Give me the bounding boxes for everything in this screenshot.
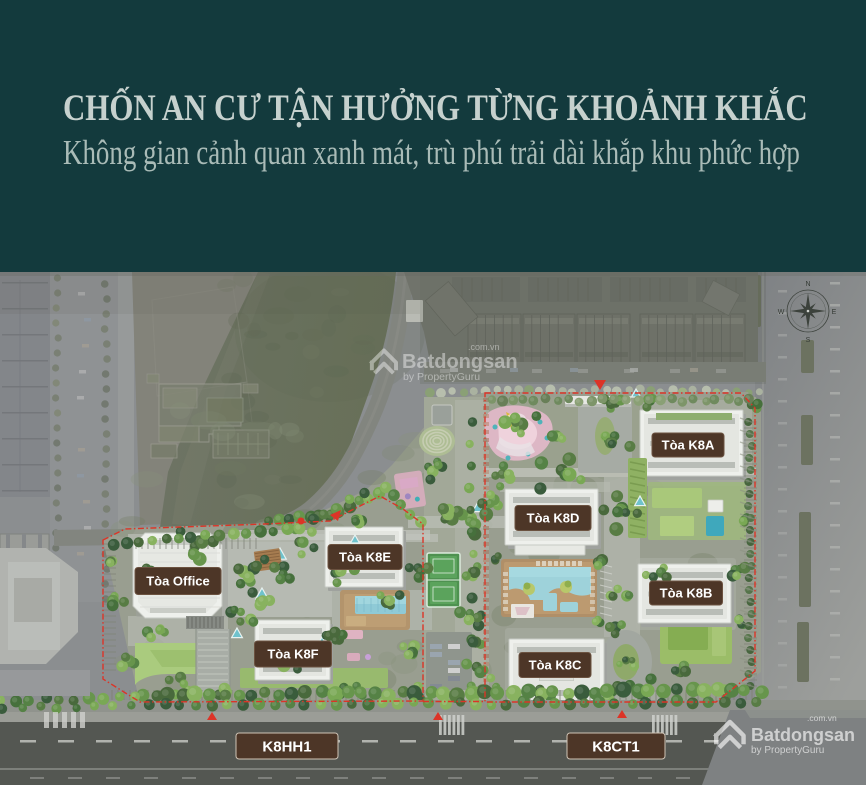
svg-text:by PropertyGuru: by PropertyGuru (751, 745, 824, 756)
svg-text:Tòa K8D: Tòa K8D (527, 511, 580, 526)
svg-text:Tòa K8E: Tòa K8E (339, 550, 391, 565)
svg-text:Tòa Office: Tòa Office (146, 574, 210, 589)
svg-text:by PropertyGuru: by PropertyGuru (403, 371, 480, 383)
svg-text:Batdongsan: Batdongsan (751, 725, 855, 745)
svg-text:E: E (832, 309, 837, 316)
svg-text:Tòa K8A: Tòa K8A (662, 438, 715, 453)
svg-text:S: S (806, 337, 811, 344)
svg-text:Tòa K8C: Tòa K8C (529, 658, 582, 673)
svg-text:W: W (778, 309, 785, 316)
svg-text:Tòa K8B: Tòa K8B (660, 586, 713, 601)
svg-text:K8CT1: K8CT1 (592, 738, 640, 755)
svg-text:K8HH1: K8HH1 (262, 738, 311, 755)
svg-text:Batdongsan: Batdongsan (402, 351, 518, 373)
svg-text:N: N (805, 281, 810, 288)
svg-text:.com.vn: .com.vn (468, 342, 500, 352)
svg-text:Tòa K8F: Tòa K8F (267, 647, 318, 662)
svg-text:.com.vn: .com.vn (807, 713, 837, 723)
